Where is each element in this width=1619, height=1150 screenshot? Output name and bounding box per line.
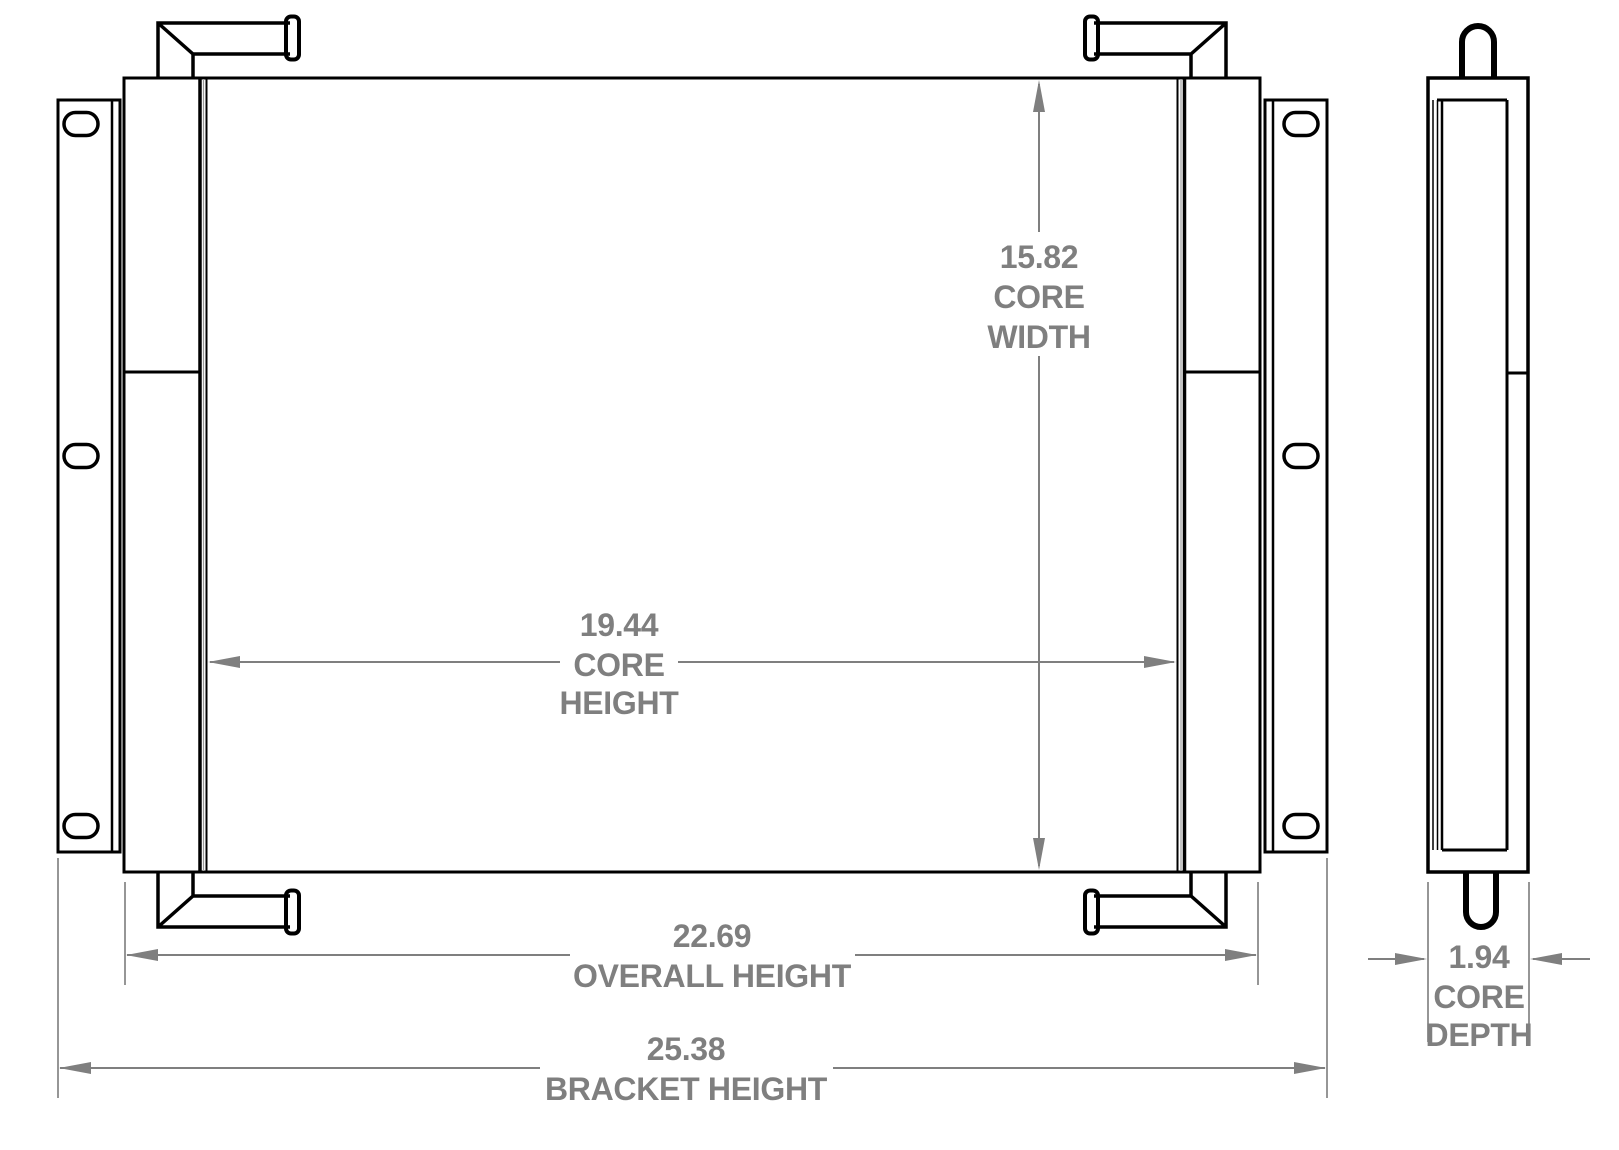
- core-depth-label2: DEPTH: [1426, 1017, 1533, 1053]
- cooler-body: [124, 78, 1260, 872]
- arrow-up-icon: [1033, 80, 1045, 112]
- arrow-right-icon: [1395, 953, 1427, 965]
- front-view: [58, 17, 1327, 934]
- core-height-value: 19.44: [580, 607, 659, 643]
- left-bracket: [58, 100, 120, 852]
- bottom-left-pipe: [158, 872, 290, 927]
- right-bracket: [1265, 100, 1327, 852]
- bracket-height-value: 25.38: [647, 1031, 726, 1067]
- arrow-left-icon: [59, 1062, 91, 1074]
- bracket-hole: [64, 113, 98, 136]
- dim-overall-height: 22.69 OVERALL HEIGHT: [125, 882, 1258, 994]
- dim-core-depth: 1.94 CORE DEPTH: [1368, 882, 1590, 1053]
- arrow-right-icon: [1225, 949, 1257, 961]
- top-left-pipe-collar: [286, 17, 299, 60]
- side-view: [1428, 26, 1528, 927]
- left-bracket-plate: [58, 100, 120, 852]
- core-depth-label1: CORE: [1433, 979, 1524, 1015]
- bracket-height-label: BRACKET HEIGHT: [545, 1071, 828, 1107]
- overall-height-value: 22.69: [673, 918, 752, 954]
- top-right-pipe-collar: [1085, 17, 1098, 60]
- arrow-down-icon: [1033, 838, 1045, 870]
- core-depth-value: 1.94: [1448, 939, 1510, 975]
- bracket-hole: [64, 815, 98, 838]
- top-right-pipe: [1094, 23, 1226, 78]
- dim-core-height: 19.44 CORE HEIGHT: [208, 607, 1176, 721]
- bracket-hole: [1284, 113, 1318, 136]
- arrow-right-icon: [1144, 656, 1176, 668]
- core-height-label2: HEIGHT: [559, 685, 679, 721]
- bottom-right-pipe: [1094, 872, 1226, 927]
- core-height-label1: CORE: [573, 647, 664, 683]
- side-bottom-tube: [1466, 872, 1496, 927]
- oil-cooler-dimension-drawing: 15.82 CORE WIDTH 19.44 CORE HEIGHT 22.69…: [0, 0, 1619, 1150]
- bottom-left-fitting: [158, 872, 299, 934]
- top-left-fitting: [158, 17, 299, 79]
- bottom-right-pipe-collar: [1085, 891, 1098, 934]
- top-left-pipe: [158, 23, 290, 78]
- arrow-left-icon: [208, 656, 240, 668]
- bracket-hole: [1284, 815, 1318, 838]
- bottom-right-fitting: [1085, 872, 1226, 934]
- right-bracket-plate: [1265, 100, 1327, 852]
- core-width-value: 15.82: [1000, 239, 1079, 275]
- side-top-tube: [1462, 26, 1494, 79]
- body-outline: [124, 78, 1260, 872]
- core-width-label1: CORE: [993, 279, 1084, 315]
- bottom-left-pipe-collar: [286, 891, 299, 934]
- overall-height-label: OVERALL HEIGHT: [573, 958, 852, 994]
- dim-core-width: 15.82 CORE WIDTH: [987, 80, 1090, 870]
- bracket-hole: [1284, 445, 1318, 468]
- arrow-left-icon: [126, 949, 158, 961]
- bracket-hole: [64, 445, 98, 468]
- arrow-right-icon: [1294, 1062, 1326, 1074]
- core-width-label2: WIDTH: [987, 319, 1090, 355]
- arrow-left-icon: [1530, 953, 1562, 965]
- top-right-fitting: [1085, 17, 1226, 79]
